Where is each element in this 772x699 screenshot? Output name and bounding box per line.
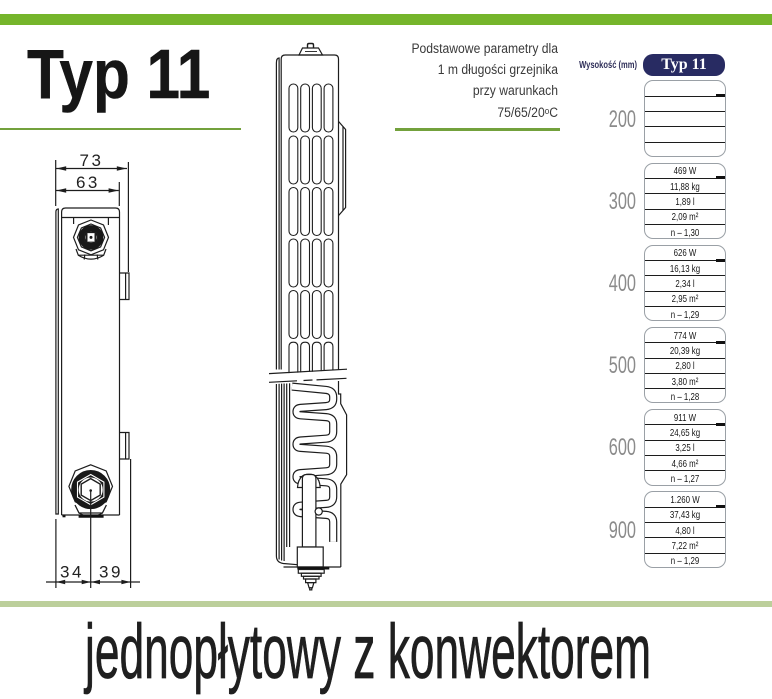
svg-text:34: 34 (60, 563, 84, 582)
svg-text:63: 63 (76, 173, 100, 192)
svg-text:73: 73 (80, 151, 104, 170)
svg-text:39: 39 (99, 563, 123, 582)
